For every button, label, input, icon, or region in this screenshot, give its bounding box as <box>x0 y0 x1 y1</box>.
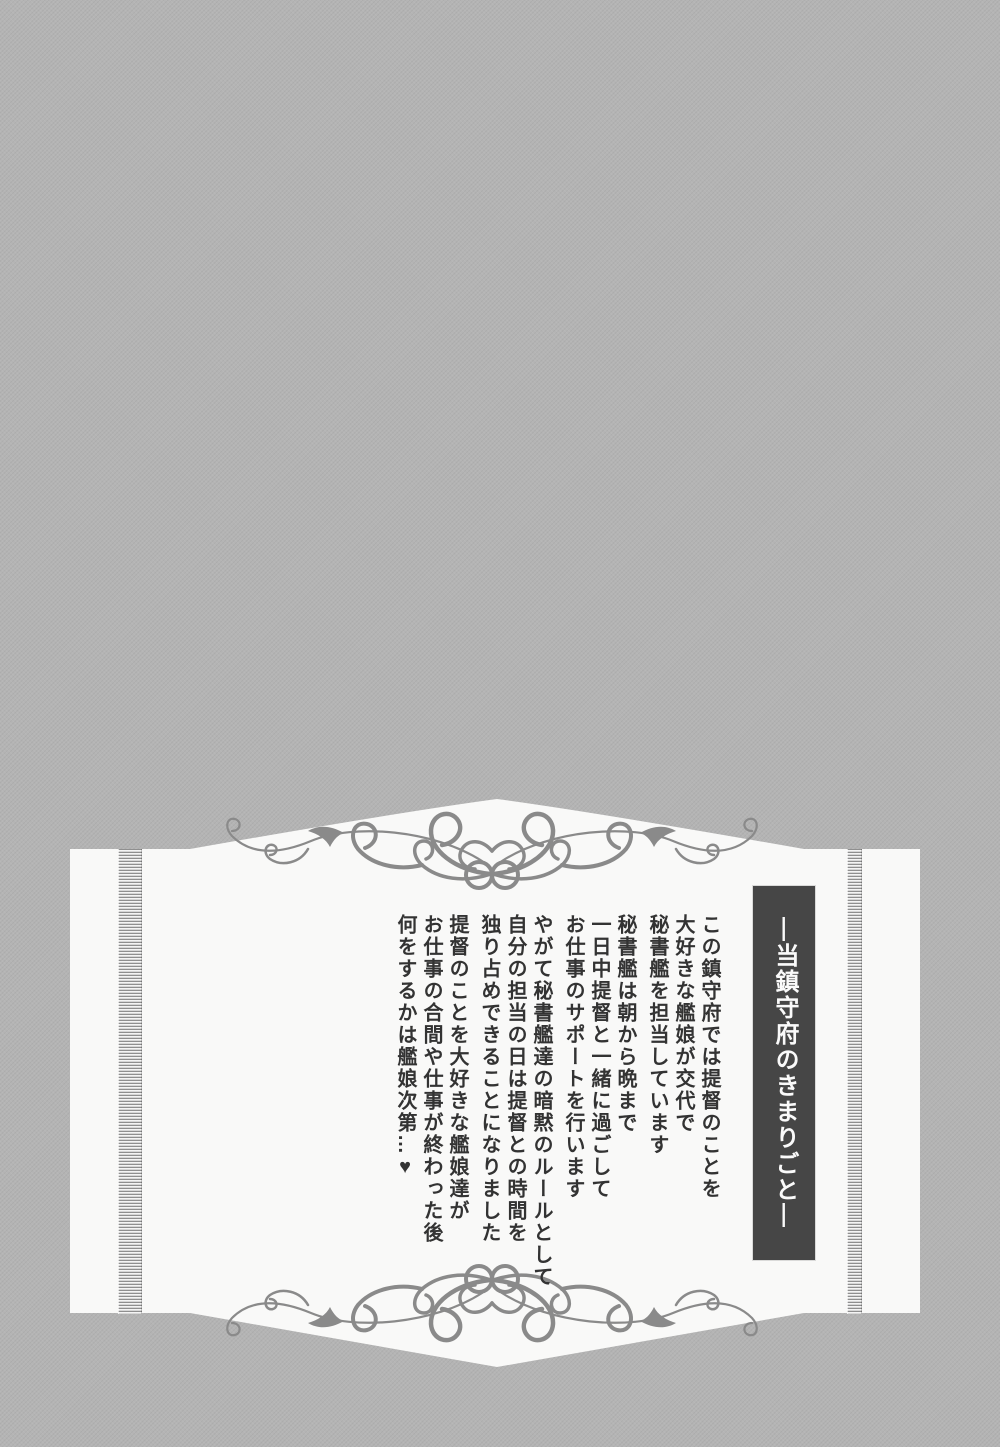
ribbed-band-right <box>847 849 862 1314</box>
text-line: お仕事のサポートを行います <box>560 914 586 1334</box>
ribbed-band-left <box>118 849 142 1314</box>
title-bar: ―当鎮守府のきまりごと― <box>753 886 815 1260</box>
text-line: 独り占めできることになりました <box>476 914 502 1334</box>
scanned-page: ―当鎮守府のきまりごと― この鎮守府では提督のことを 大好きな艦娘が交代で 秘書… <box>0 0 1000 1447</box>
text-line: この鎮守府では提督のことを <box>696 914 722 1334</box>
text-line: 提督のことを大好きな艦娘達が <box>444 914 470 1334</box>
paragraph-group: この鎮守府では提督のことを 大好きな艦娘が交代で 秘書艦を担当しています <box>644 914 722 1334</box>
paragraph-group: やがて秘書艦達の暗黙のルールとして 自分の担当の日は提督との時間を 独り占めでき… <box>476 914 554 1334</box>
text-line: 大好きな艦娘が交代で <box>670 914 696 1334</box>
panel-title: ―当鎮守府のきまりごと― <box>753 917 815 1229</box>
text-line: 秘書艦を担当しています <box>644 914 670 1334</box>
body-text: この鎮守府では提督のことを 大好きな艦娘が交代で 秘書艦を担当しています 秘書艦… <box>392 914 722 1334</box>
paragraph-group: 秘書艦は朝から晩まで 一日中提督と一緒に過ごして お仕事のサポートを行います <box>560 914 638 1334</box>
text-line: お仕事の合間や仕事が終わった後 <box>418 914 444 1334</box>
text-line: 秘書艦は朝から晩まで <box>612 914 638 1334</box>
text-line: 何をするかは艦娘次第…♥ <box>392 914 418 1334</box>
text-line: 一日中提督と一緒に過ごして <box>586 914 612 1334</box>
text-line: 自分の担当の日は提督との時間を <box>502 914 528 1334</box>
text-line: やがて秘書艦達の暗黙のルールとして <box>528 914 554 1334</box>
paragraph-group: 提督のことを大好きな艦娘達が お仕事の合間や仕事が終わった後 何をするかは艦娘次… <box>392 914 470 1334</box>
